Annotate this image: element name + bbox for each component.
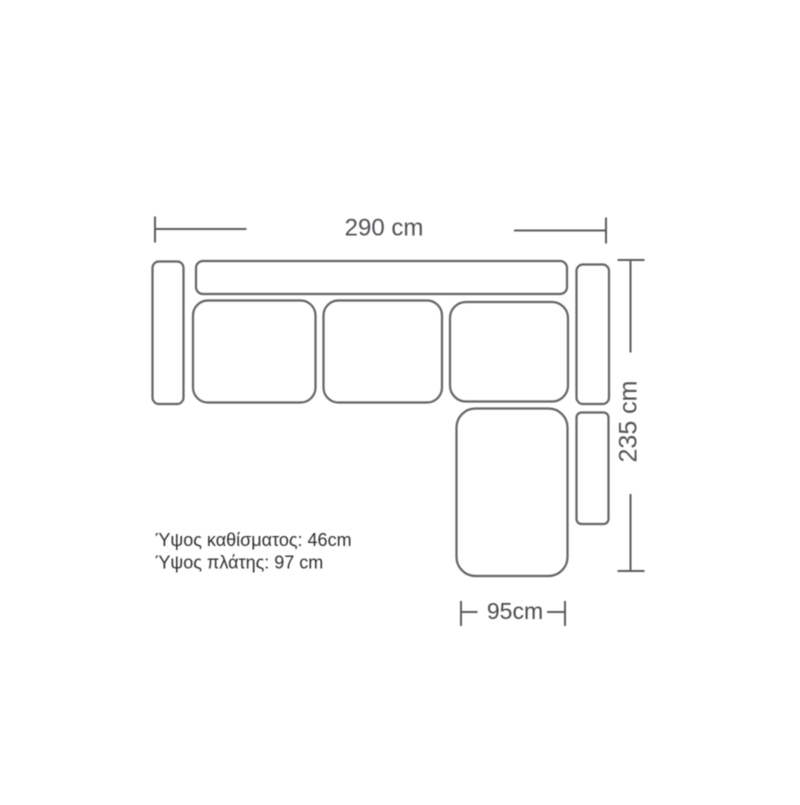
svg-text:290 cm: 290 cm bbox=[345, 215, 424, 242]
svg-text:Ύψος πλάτης: 97 cm: Ύψος πλάτης: 97 cm bbox=[155, 553, 323, 573]
svg-text:95cm: 95cm bbox=[487, 598, 543, 624]
svg-text:235 cm: 235 cm bbox=[615, 381, 643, 463]
svg-text:Ύψος καθίσματος: 46cm: Ύψος καθίσματος: 46cm bbox=[155, 530, 352, 550]
